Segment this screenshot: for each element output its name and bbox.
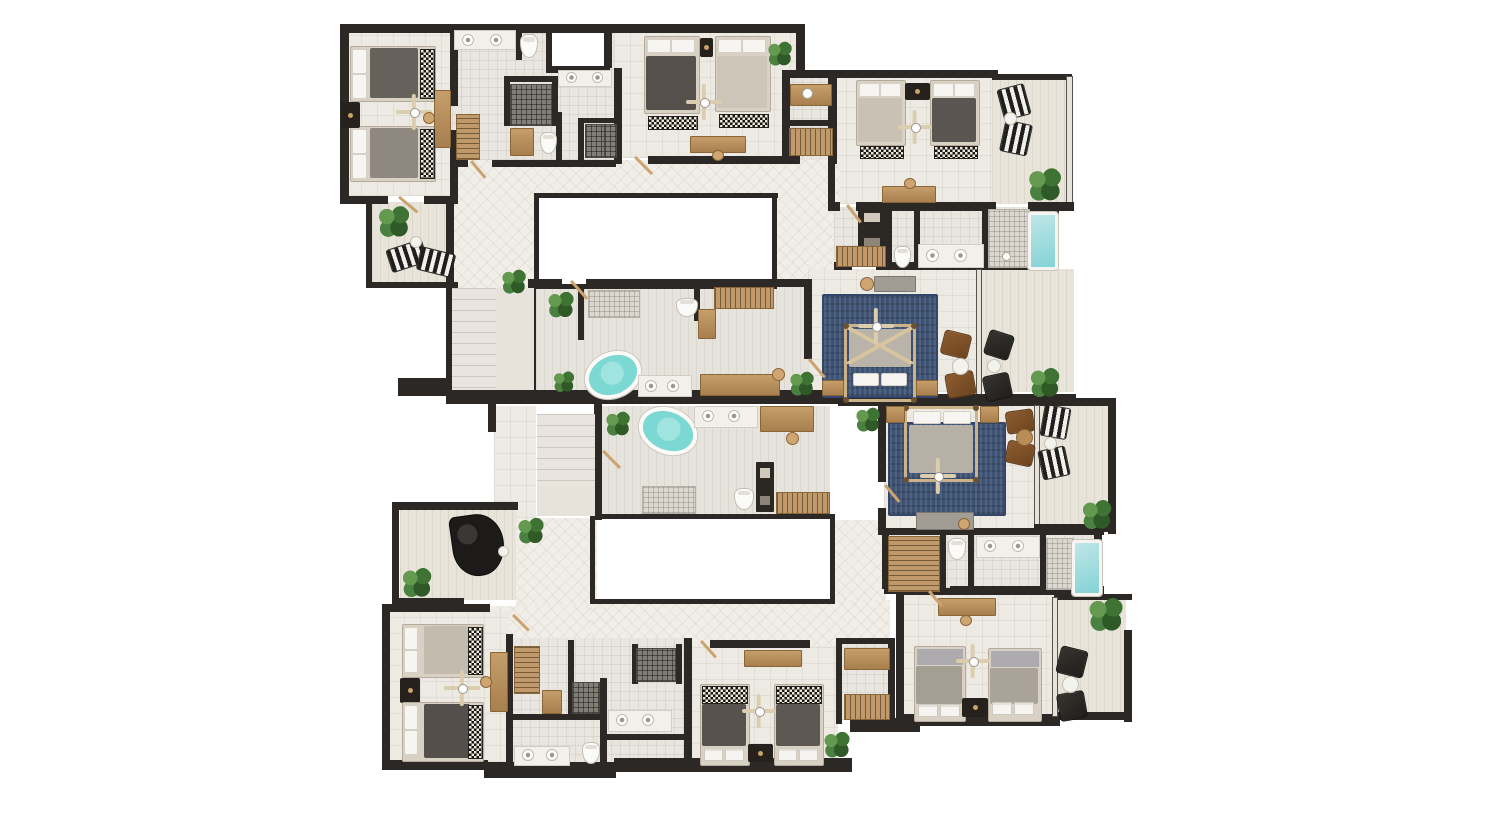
pillow <box>943 411 971 424</box>
wall <box>614 758 690 772</box>
shower <box>572 682 600 714</box>
pillow <box>404 627 418 650</box>
side-table <box>1016 429 1033 446</box>
pillow <box>404 705 418 730</box>
stool <box>958 518 970 530</box>
sink-basin <box>645 380 657 392</box>
shower <box>642 486 696 514</box>
closet-shelf <box>698 309 716 339</box>
clothes-rack <box>836 246 886 267</box>
blanket <box>916 666 962 704</box>
pillow <box>880 83 901 97</box>
potted-plant-icon <box>1026 166 1064 204</box>
vanity-bench <box>542 690 562 714</box>
sun-lounger <box>1037 445 1071 480</box>
tv-console <box>400 678 420 703</box>
pillow <box>404 650 418 673</box>
mirror-icon <box>802 88 813 99</box>
staircase-landing <box>496 288 534 390</box>
woven-bench <box>468 705 483 759</box>
wall <box>578 118 584 160</box>
potted-plant-icon <box>788 370 816 398</box>
bed-post <box>903 477 909 483</box>
stool <box>772 368 785 381</box>
tv-console <box>700 38 713 57</box>
courtyard-wall <box>534 193 778 198</box>
side-table <box>410 236 422 248</box>
potted-plant-icon <box>854 406 882 434</box>
wall <box>398 378 460 396</box>
chair <box>480 676 492 688</box>
wall <box>382 604 490 612</box>
blanket <box>858 98 902 142</box>
wall <box>382 604 390 770</box>
nightstand-dark <box>962 698 988 717</box>
blanket <box>424 626 470 674</box>
sink-basin <box>926 249 939 262</box>
wall <box>340 24 805 33</box>
potted-plant-icon <box>400 566 434 600</box>
potted-plant-icon <box>1080 498 1114 532</box>
sink-basin <box>954 249 967 262</box>
plunge-pool <box>1072 540 1102 596</box>
shower-drain-icon <box>1002 252 1011 261</box>
wall <box>488 404 496 432</box>
window-line <box>1034 405 1040 531</box>
wall <box>492 160 616 167</box>
chair <box>423 112 435 124</box>
wall <box>594 404 602 520</box>
blanket <box>932 98 976 142</box>
woven-bench <box>420 129 435 179</box>
wall <box>648 156 800 164</box>
wall <box>782 70 998 78</box>
wardrobe <box>514 646 540 694</box>
pillow <box>742 39 766 53</box>
potted-plant-icon <box>376 204 412 240</box>
sink-basin <box>642 714 654 726</box>
courtyard-upper <box>538 197 774 285</box>
shower <box>604 124 617 158</box>
woven-bench <box>420 49 435 99</box>
stool <box>786 432 799 445</box>
window-line <box>1066 76 1073 208</box>
woven-bench <box>468 627 483 675</box>
vanity-counter <box>760 406 814 432</box>
nightstand <box>916 380 938 396</box>
staircase-landing <box>537 486 595 516</box>
plunge-pool <box>1028 212 1058 270</box>
shower <box>588 290 640 318</box>
wall <box>710 640 810 648</box>
wall <box>392 502 518 510</box>
wall <box>886 207 892 265</box>
bed-post <box>911 397 917 403</box>
blanket <box>776 704 820 746</box>
wall <box>452 160 468 167</box>
folded-towels <box>799 748 818 761</box>
sink-basin <box>667 380 679 392</box>
nightstand <box>822 380 844 396</box>
sun-lounger <box>1039 404 1071 440</box>
ceiling-fan-icon <box>900 112 930 142</box>
bed-post <box>843 323 849 329</box>
walk-in-closet <box>888 536 940 592</box>
bed-post <box>911 323 917 329</box>
wardrobe <box>456 114 480 160</box>
courtyard-wall <box>590 599 835 604</box>
pillow <box>352 129 367 154</box>
nightstand <box>886 406 905 423</box>
pillow <box>404 730 418 755</box>
tv-console <box>341 102 360 128</box>
vanity-bench <box>510 128 534 156</box>
staircase-upper <box>452 288 496 390</box>
wall <box>604 24 612 68</box>
vanity-counter <box>700 374 780 396</box>
pillow <box>881 373 907 386</box>
woven-bench <box>648 116 698 130</box>
sink-basin <box>566 72 577 83</box>
chair <box>712 150 724 161</box>
courtyard-wall <box>534 193 539 289</box>
sink-basin <box>462 34 474 46</box>
lounge-chair-black <box>982 371 1014 402</box>
wall <box>684 638 692 768</box>
sink-basin <box>702 410 714 422</box>
wall <box>796 24 805 76</box>
blanket <box>717 56 767 108</box>
side-table <box>1044 437 1057 450</box>
sink-basin <box>984 540 996 552</box>
blanket <box>370 48 418 98</box>
staircase-lower <box>537 414 595 486</box>
closet-shelving <box>756 462 774 512</box>
potted-plant-icon <box>1028 366 1062 400</box>
pillow <box>859 83 880 97</box>
wall <box>968 533 974 591</box>
bed-post <box>973 405 979 411</box>
ceiling-fan-icon <box>958 646 988 676</box>
wall <box>340 196 388 204</box>
sink-basin <box>592 72 603 83</box>
potted-plant-icon <box>766 40 794 68</box>
potted-plant-icon <box>546 290 576 320</box>
wall <box>782 120 834 126</box>
sink-basin <box>616 714 628 726</box>
wall <box>504 76 558 82</box>
pillow <box>352 74 367 99</box>
wall <box>546 24 552 68</box>
folded-towels <box>992 702 1012 715</box>
courtyard-wall <box>772 193 777 289</box>
wall <box>1124 630 1132 722</box>
pillow <box>990 650 1040 668</box>
wall <box>1028 202 1074 211</box>
ceiling-fan-icon <box>922 460 954 492</box>
folded-towels <box>725 748 744 761</box>
pillow <box>933 83 954 97</box>
shower <box>636 648 676 682</box>
wall <box>828 164 835 204</box>
sink-basin <box>728 410 740 422</box>
blanket <box>370 128 418 178</box>
potted-plant-icon <box>516 516 546 546</box>
side-table <box>987 359 1001 373</box>
sink-basin <box>522 749 534 761</box>
woven-bench <box>719 114 769 128</box>
wall <box>676 644 682 684</box>
pillow <box>352 49 367 74</box>
nightstand-dark <box>748 744 773 762</box>
folded-towels <box>778 748 797 761</box>
piano-bench <box>498 546 509 557</box>
potted-plant-icon <box>1086 596 1126 634</box>
ceiling-fan-icon <box>688 86 720 118</box>
blanket <box>990 668 1038 704</box>
ceiling-fan-icon <box>446 672 478 704</box>
folded-towels <box>1014 702 1034 715</box>
potted-plant-icon <box>822 730 852 760</box>
desk <box>434 90 451 148</box>
folded-towels <box>940 704 960 717</box>
clothes-rack <box>714 287 774 309</box>
clothes-rack <box>776 492 830 514</box>
woven-bench <box>860 146 904 159</box>
floor-plan <box>0 0 1500 821</box>
chair <box>904 178 916 189</box>
potted-plant-icon <box>604 410 632 438</box>
wall <box>836 638 842 724</box>
side-table <box>952 358 969 375</box>
wall <box>940 533 946 591</box>
sink-basin <box>546 749 558 761</box>
wall <box>804 279 812 359</box>
wall <box>896 590 904 722</box>
pillow <box>671 39 695 53</box>
sink-basin <box>490 34 502 46</box>
desk <box>744 650 802 667</box>
folded-towels <box>918 704 938 717</box>
desk <box>938 598 996 616</box>
pillow <box>913 411 941 424</box>
bed-post <box>973 477 979 483</box>
pillow <box>853 373 879 386</box>
courtyard-wall <box>830 514 835 604</box>
blanket <box>702 704 746 746</box>
potted-plant-icon <box>552 370 576 394</box>
side-table <box>1004 112 1017 125</box>
folded-towels <box>704 748 723 761</box>
courtyard-wall <box>590 514 835 519</box>
chair <box>960 615 972 626</box>
wall <box>838 638 892 644</box>
wall <box>1076 398 1116 406</box>
pillow <box>954 83 975 97</box>
courtyard-wall <box>590 514 595 604</box>
woven-bench <box>934 146 978 159</box>
ceiling-fan-icon <box>744 696 774 726</box>
clothes-rack <box>844 694 890 720</box>
lounge-chair-black <box>1056 690 1088 722</box>
ceiling-fan-icon <box>860 310 892 342</box>
dresser <box>844 648 890 670</box>
sink-basin <box>1012 540 1024 552</box>
wall <box>600 678 607 768</box>
pillow <box>916 648 964 666</box>
floor-plan-canvas <box>0 0 1500 821</box>
shower <box>510 84 552 126</box>
stool <box>860 277 874 291</box>
clothes-rack <box>789 128 833 156</box>
wall <box>366 202 372 288</box>
blanket <box>424 704 470 758</box>
wall <box>512 714 600 720</box>
pillow <box>352 154 367 179</box>
potted-plant-icon <box>500 268 528 296</box>
wall <box>878 508 886 535</box>
nightstand <box>980 406 999 423</box>
tv-console <box>905 83 930 100</box>
desk <box>490 652 508 712</box>
shower <box>1046 538 1074 590</box>
window-line <box>976 269 982 397</box>
pillow <box>718 39 742 53</box>
wall <box>392 502 399 606</box>
bed-post <box>843 397 849 403</box>
wall <box>366 282 458 288</box>
pillow <box>647 39 671 53</box>
wall <box>992 74 1072 80</box>
woven-headboard <box>702 686 748 704</box>
wall <box>604 734 686 740</box>
courtyard-lower <box>597 519 830 600</box>
side-table <box>1062 676 1079 693</box>
foot-bench <box>874 276 916 292</box>
woven-headboard <box>776 686 822 704</box>
